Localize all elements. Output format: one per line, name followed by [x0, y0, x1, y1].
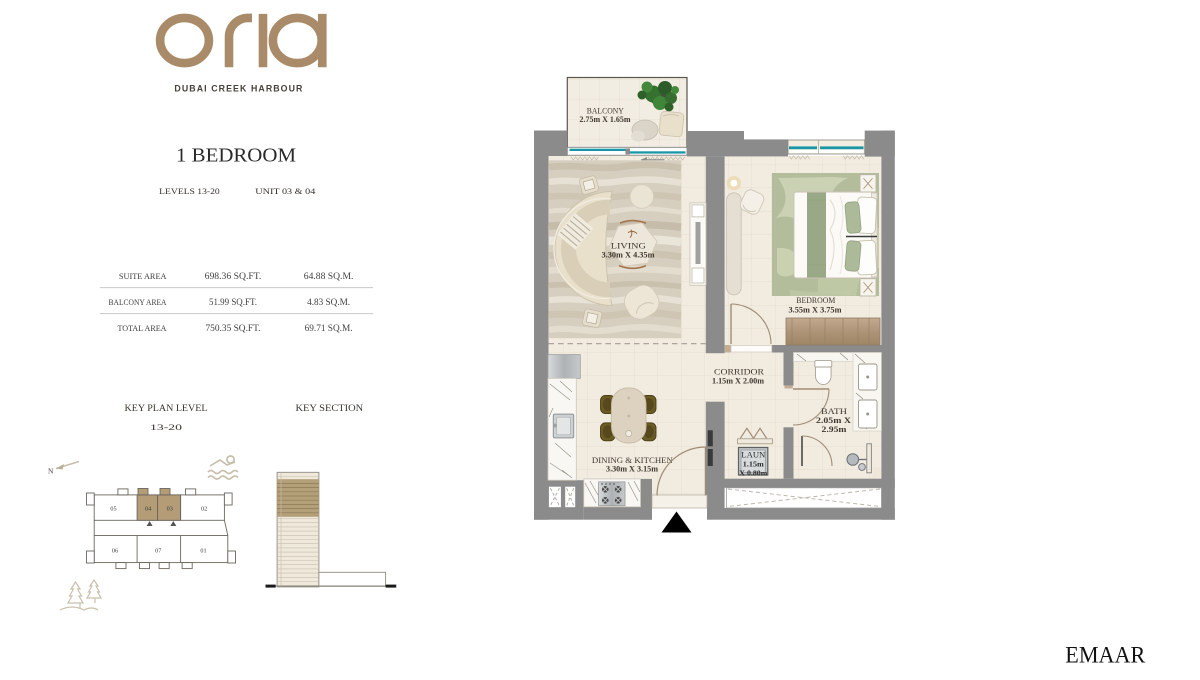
- svg-text:1.15m: 1.15m: [743, 460, 765, 469]
- svg-text:TOTAL AREA: TOTAL AREA: [118, 323, 168, 333]
- svg-text:EMAAR: EMAAR: [1065, 643, 1145, 669]
- svg-text:BALCONY AREA: BALCONY AREA: [109, 297, 168, 307]
- svg-text:64.88 SQ.M.: 64.88 SQ.M.: [304, 271, 354, 281]
- svg-text:02: 02: [201, 506, 207, 513]
- svg-text:05: 05: [110, 506, 116, 513]
- svg-text:2.75m X 1.65m: 2.75m X 1.65m: [580, 114, 632, 124]
- svg-text:1 BEDROOM: 1 BEDROOM: [176, 145, 296, 167]
- svg-text:LAUN: LAUN: [741, 451, 765, 460]
- svg-text:X 0.80m: X 0.80m: [739, 469, 767, 478]
- svg-text:BEDROOM: BEDROOM: [796, 295, 835, 305]
- svg-text:SUITE AREA: SUITE AREA: [119, 271, 167, 281]
- svg-text:LEVELS 13-20: LEVELS 13-20: [159, 186, 220, 196]
- svg-text:KEY PLAN LEVEL: KEY PLAN LEVEL: [125, 403, 208, 413]
- svg-text:3.30m X 3.15m: 3.30m X 3.15m: [606, 464, 659, 474]
- svg-text:1.15m X 2.00m: 1.15m X 2.00m: [712, 376, 765, 386]
- svg-text:698.36 SQ.FT.: 698.36 SQ.FT.: [205, 271, 262, 281]
- svg-text:07: 07: [155, 547, 161, 554]
- svg-text:04: 04: [145, 506, 151, 513]
- svg-text:03: 03: [167, 506, 173, 513]
- svg-text:01: 01: [200, 547, 206, 554]
- svg-text:UNIT 03 & 04: UNIT 03 & 04: [255, 186, 316, 196]
- svg-text:69.71 SQ.M.: 69.71 SQ.M.: [305, 323, 353, 333]
- svg-text:06: 06: [112, 547, 118, 554]
- svg-text:KEY SECTION: KEY SECTION: [296, 403, 364, 413]
- svg-text:3.30m X 4.35m: 3.30m X 4.35m: [602, 250, 656, 260]
- svg-text:3.55m X 3.75m: 3.55m X 3.75m: [789, 305, 843, 315]
- svg-text:DUBAI CREEK HARBOUR: DUBAI CREEK HARBOUR: [174, 84, 303, 94]
- svg-text:13-20: 13-20: [150, 423, 182, 432]
- svg-text:2.95m: 2.95m: [822, 424, 848, 434]
- svg-text:4.83 SQ.M.: 4.83 SQ.M.: [307, 297, 350, 307]
- svg-text:51.99 SQ.FT.: 51.99 SQ.FT.: [209, 297, 257, 307]
- svg-text:750.35 SQ.FT.: 750.35 SQ.FT.: [206, 323, 261, 333]
- svg-text:N: N: [48, 467, 54, 476]
